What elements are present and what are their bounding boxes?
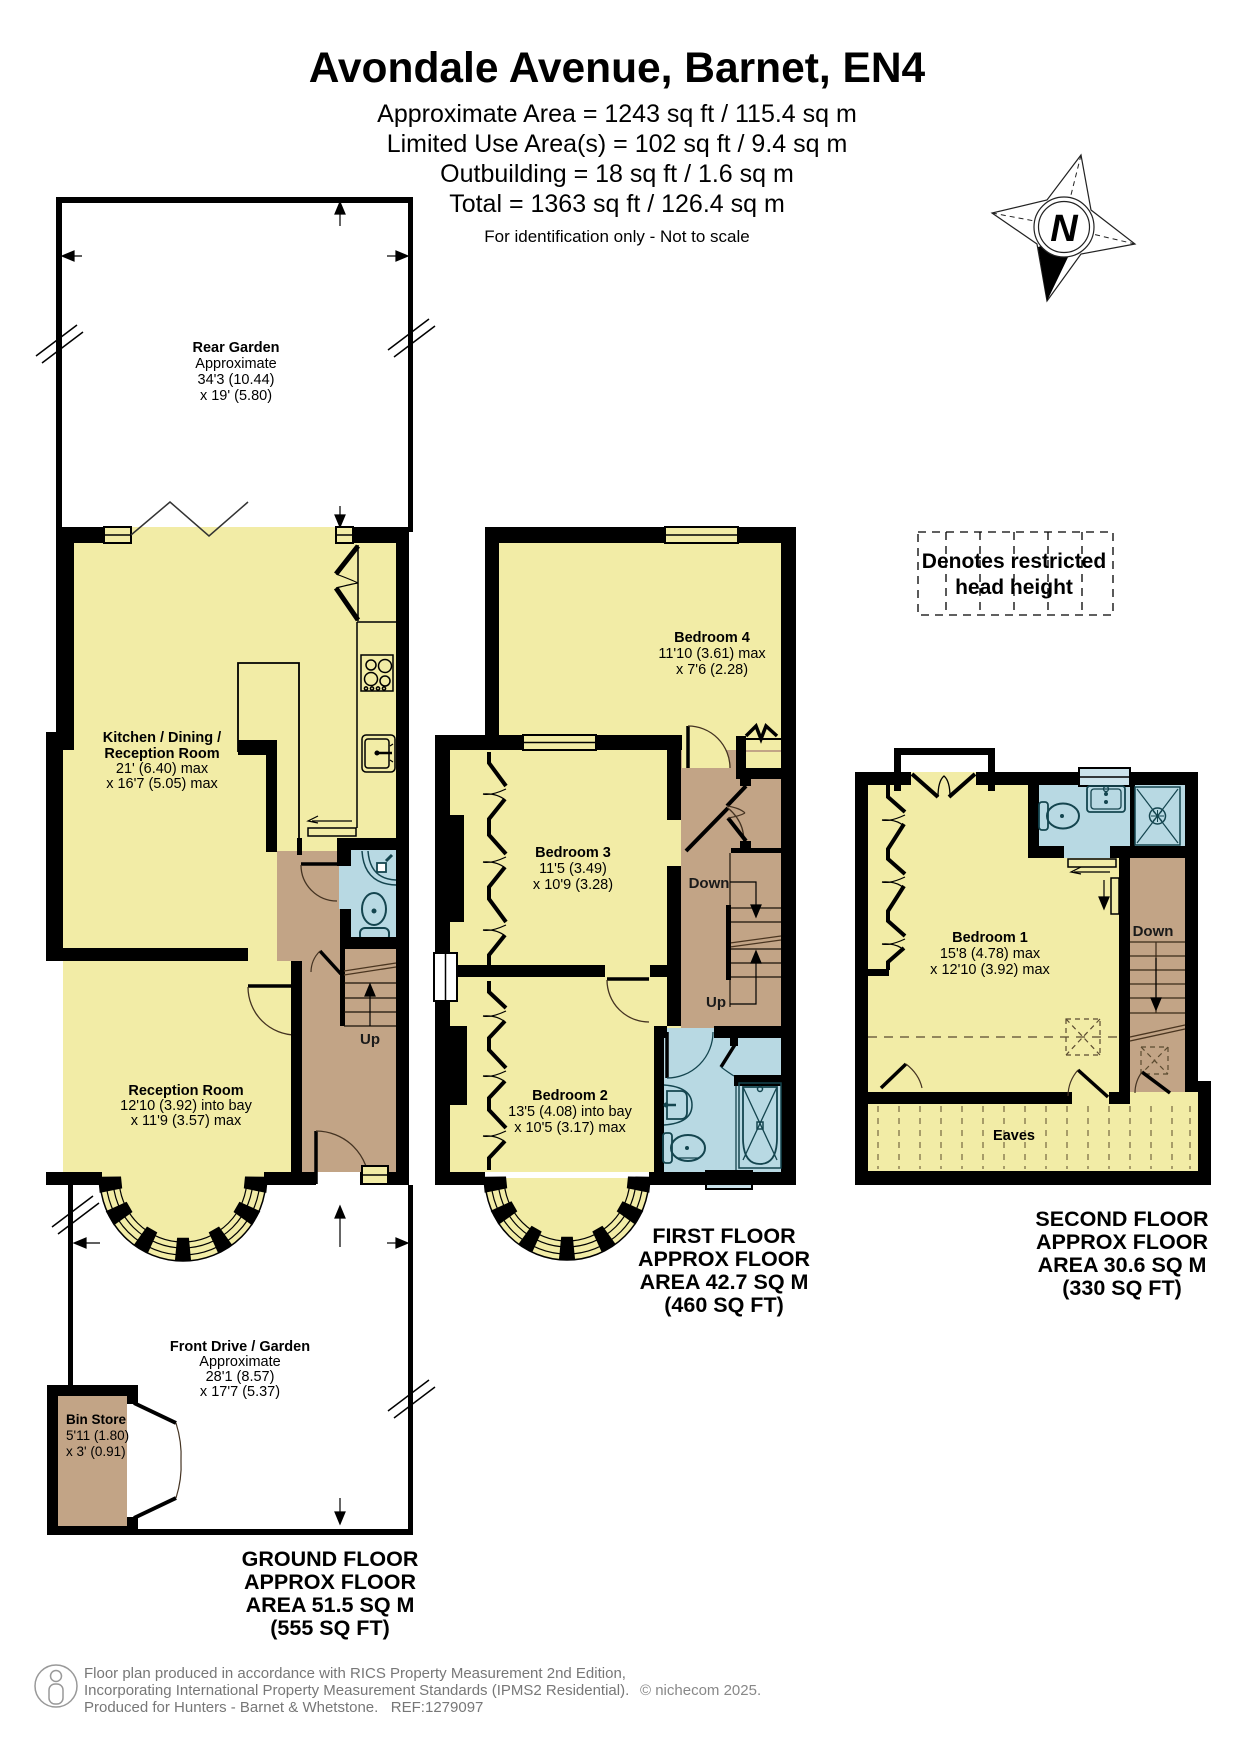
svg-text:13'5 (4.08) into bay: 13'5 (4.08) into bay xyxy=(508,1104,632,1120)
svg-text:© nichecom 2025.: © nichecom 2025. xyxy=(640,1682,761,1699)
svg-text:x 10'9 (3.28): x 10'9 (3.28) xyxy=(533,877,613,893)
svg-text:Produced for Hunters - Barnet: Produced for Hunters - Barnet & Whetston… xyxy=(84,1699,483,1716)
svg-text:AREA 30.6 SQ M: AREA 30.6 SQ M xyxy=(1038,1253,1207,1277)
svg-text:Up: Up xyxy=(360,1031,380,1048)
svg-text:Bedroom 4: Bedroom 4 xyxy=(674,630,750,646)
svg-text:x 16'7 (5.05) max: x 16'7 (5.05) max xyxy=(106,776,218,792)
svg-text:Limited Use Area(s) = 102 sq f: Limited Use Area(s) = 102 sq ft / 9.4 sq… xyxy=(387,130,848,158)
svg-text:Avondale Avenue, Barnet, EN4: Avondale Avenue, Barnet, EN4 xyxy=(309,45,926,92)
svg-text:5'11 (1.80): 5'11 (1.80) xyxy=(66,1428,129,1443)
svg-text:x 7'6 (2.28): x 7'6 (2.28) xyxy=(676,662,748,678)
svg-text:Down: Down xyxy=(689,875,730,892)
svg-text:head height: head height xyxy=(955,576,1073,599)
svg-text:15'8 (4.78) max: 15'8 (4.78) max xyxy=(940,946,1041,962)
svg-text:Denotes restricted: Denotes restricted xyxy=(922,550,1106,573)
svg-text:SECOND FLOOR: SECOND FLOOR xyxy=(1035,1207,1209,1231)
svg-text:Bedroom 1: Bedroom 1 xyxy=(952,930,1028,946)
svg-text:(555 SQ FT): (555 SQ FT) xyxy=(270,1616,389,1640)
svg-text:Approximate Area = 1243 sq ft: Approximate Area = 1243 sq ft / 115.4 sq… xyxy=(377,100,857,128)
svg-text:Approximate: Approximate xyxy=(199,1354,280,1370)
svg-text:N: N xyxy=(1050,208,1079,250)
svg-text:AREA 51.5 SQ M: AREA 51.5 SQ M xyxy=(246,1593,415,1617)
svg-text:GROUND FLOOR: GROUND FLOOR xyxy=(242,1547,419,1571)
svg-text:(460 SQ FT): (460 SQ FT) xyxy=(664,1293,783,1317)
svg-text:Front Drive / Garden: Front Drive / Garden xyxy=(170,1339,310,1355)
svg-text:APPROX FLOOR: APPROX FLOOR xyxy=(638,1247,810,1271)
svg-text:Rear Garden: Rear Garden xyxy=(192,340,279,356)
svg-text:FIRST FLOOR: FIRST FLOOR xyxy=(652,1224,796,1248)
svg-text:(330 SQ FT): (330 SQ FT) xyxy=(1062,1276,1181,1300)
svg-text:11'10 (3.61) max: 11'10 (3.61) max xyxy=(658,646,766,662)
svg-text:x 10'5 (3.17) max: x 10'5 (3.17) max xyxy=(514,1120,626,1136)
svg-text:28'1 (8.57): 28'1 (8.57) xyxy=(206,1369,275,1385)
svg-text:11'5 (3.49): 11'5 (3.49) xyxy=(539,861,607,877)
svg-text:APPROX FLOOR: APPROX FLOOR xyxy=(1036,1230,1208,1254)
svg-text:x 19' (5.80): x 19' (5.80) xyxy=(200,388,272,404)
svg-text:Approximate: Approximate xyxy=(195,356,276,372)
svg-text:Reception Room: Reception Room xyxy=(104,746,219,762)
svg-text:21' (6.40) max: 21' (6.40) max xyxy=(116,761,209,777)
svg-text:x 17'7 (5.37): x 17'7 (5.37) xyxy=(200,1384,280,1400)
svg-text:x 12'10 (3.92) max: x 12'10 (3.92) max xyxy=(930,962,1050,978)
svg-text:34'3 (10.44): 34'3 (10.44) xyxy=(198,372,275,388)
svg-text:Bedroom 2: Bedroom 2 xyxy=(532,1088,608,1104)
svg-text:Kitchen / Dining /: Kitchen / Dining / xyxy=(103,730,221,746)
svg-text:12'10 (3.92) into bay: 12'10 (3.92) into bay xyxy=(120,1098,252,1114)
svg-text:Bin Store: Bin Store xyxy=(66,1412,126,1427)
svg-text:APPROX FLOOR: APPROX FLOOR xyxy=(244,1570,416,1594)
svg-text:Incorporating International Pr: Incorporating International Property Mea… xyxy=(84,1682,629,1699)
svg-text:Floor plan produced in accorda: Floor plan produced in accordance with R… xyxy=(84,1665,626,1682)
svg-text:Down: Down xyxy=(1133,923,1174,940)
svg-text:AREA 42.7 SQ M: AREA 42.7 SQ M xyxy=(640,1270,809,1294)
svg-text:Up: Up xyxy=(706,994,726,1011)
svg-text:Bedroom 3: Bedroom 3 xyxy=(535,845,611,861)
svg-text:Outbuilding = 18 sq ft / 1.6 s: Outbuilding = 18 sq ft / 1.6 sq m xyxy=(440,160,794,188)
svg-text:Total = 1363 sq ft / 126.4 sq: Total = 1363 sq ft / 126.4 sq m xyxy=(449,190,785,218)
svg-text:x 3' (0.91): x 3' (0.91) xyxy=(66,1444,126,1459)
svg-text:x 11'9 (3.57) max: x 11'9 (3.57) max xyxy=(131,1113,242,1129)
svg-text:For identification only - Not: For identification only - Not to scale xyxy=(484,227,750,246)
svg-text:Eaves: Eaves xyxy=(993,1128,1035,1144)
svg-text:Reception Room: Reception Room xyxy=(128,1083,243,1099)
